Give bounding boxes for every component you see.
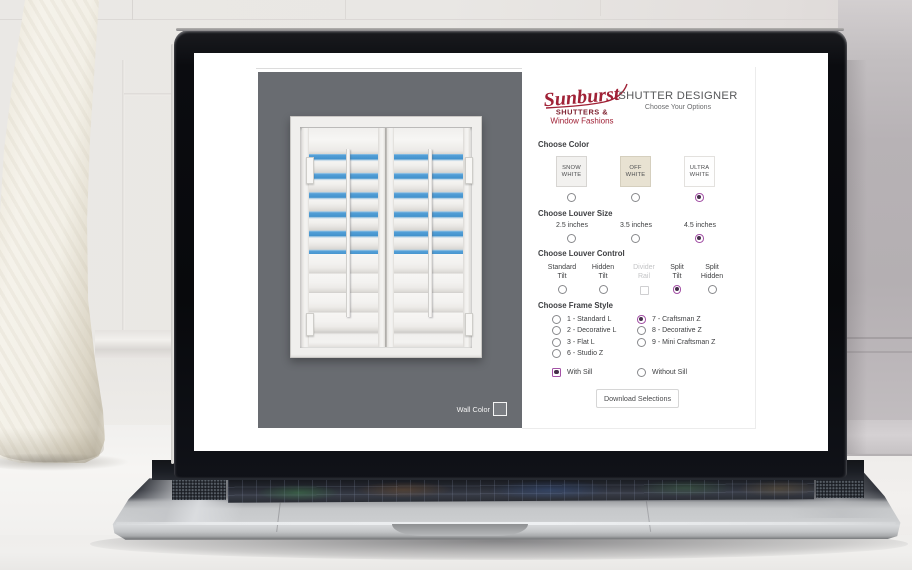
svg-text:Window Fashions: Window Fashions: [550, 117, 613, 126]
svg-text:SHUTTERS &: SHUTTERS &: [556, 108, 608, 117]
